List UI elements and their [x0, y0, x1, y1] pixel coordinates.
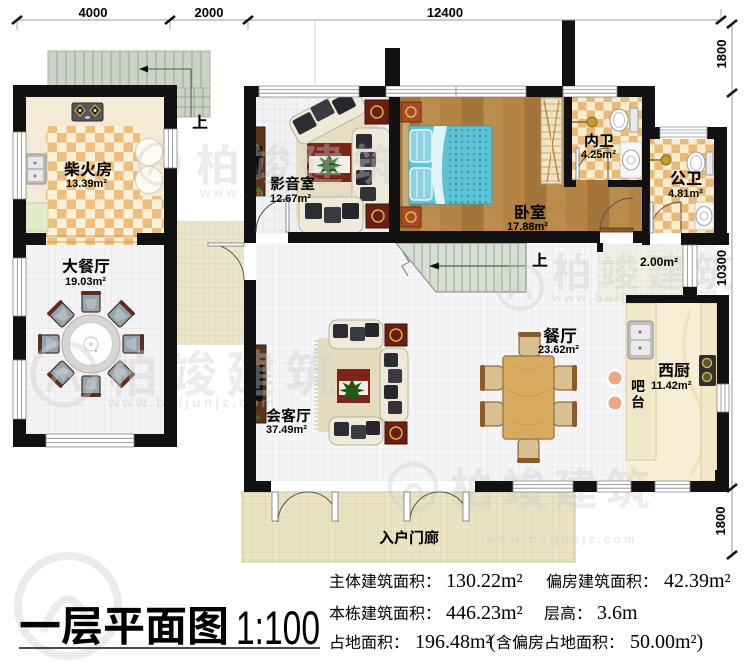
svg-text:4.81m²: 4.81m²	[668, 188, 703, 200]
svg-text:1:100: 1:100	[236, 601, 320, 654]
svg-text:130.22m²: 130.22m²	[446, 570, 523, 592]
svg-text:11.42m²: 11.42m²	[651, 380, 692, 392]
svg-text:1800: 1800	[714, 40, 729, 69]
svg-text:13.39m²: 13.39m²	[66, 178, 107, 190]
svg-text:19.03m²: 19.03m²	[65, 276, 106, 288]
svg-text:4000: 4000	[79, 5, 108, 20]
svg-text:2000: 2000	[195, 5, 224, 20]
svg-text:37.49m²: 37.49m²	[266, 424, 307, 436]
svg-text:446.23m²: 446.23m²	[446, 602, 523, 624]
svg-text:12400: 12400	[427, 5, 463, 20]
svg-text:4.25m²: 4.25m²	[581, 149, 616, 161]
svg-text:1800: 1800	[713, 507, 728, 536]
svg-text:(: (	[489, 631, 496, 653]
svg-text:50.00m²): 50.00m²)	[630, 631, 703, 653]
svg-text:10300: 10300	[714, 250, 729, 286]
svg-text:42.39m²: 42.39m²	[664, 570, 731, 592]
svg-text:3.6m: 3.6m	[597, 602, 638, 624]
svg-text:2.00m²: 2.00m²	[640, 255, 678, 269]
svg-text:12.67m²: 12.67m²	[270, 193, 311, 205]
svg-text:23.62m²: 23.62m²	[538, 344, 579, 356]
svg-text:17.88m²: 17.88m²	[507, 221, 548, 233]
svg-text:www.baijunjz.com: www.baijunjz.com	[485, 532, 638, 546]
svg-text:196.48m²: 196.48m²	[415, 631, 492, 653]
